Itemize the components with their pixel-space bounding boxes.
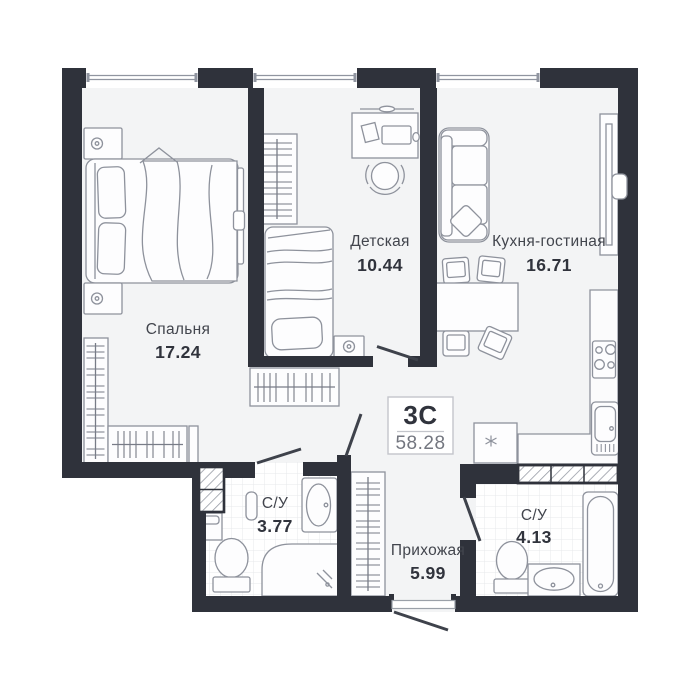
vent-shaft-hatched: [199, 467, 224, 512]
wardrobe-side-panel: [189, 426, 198, 463]
desk: [352, 106, 419, 158]
room-label-kitchen-living: Кухня-гостиная: [492, 233, 606, 250]
room-area-bedroom: 17.24: [155, 342, 201, 362]
wardrobe: [84, 338, 108, 463]
toilet: [494, 542, 530, 594]
room-label-bedroom: Спальня: [146, 321, 210, 338]
sofa: [439, 128, 489, 242]
wardrobe: [108, 426, 187, 463]
kitchen-sink: [592, 402, 619, 455]
single-bed: [265, 227, 333, 358]
nightstand: [84, 128, 122, 159]
toilet: [213, 539, 250, 593]
window: [436, 68, 540, 88]
room-area-kids: 10.44: [357, 255, 403, 275]
entrance-door: [392, 601, 455, 631]
wardrobe: [250, 368, 339, 406]
nightstand: [84, 283, 122, 314]
duct-shaft-hatched: [518, 465, 618, 483]
fridge: [474, 423, 517, 463]
windows: [86, 68, 540, 88]
bathroom-sink: [302, 478, 337, 532]
floor-plan: Спальня 17.24 Детская 10.44 Кухня-гостин…: [0, 0, 700, 700]
room-label-hallway: Прихожая: [391, 542, 465, 559]
unit-info-box: 3С 58.28: [388, 397, 453, 454]
cabinet-handle: [612, 174, 627, 199]
bathroom-vanity-sink: [528, 564, 580, 596]
room-area-hallway: 5.99: [410, 563, 446, 583]
room-area-kitchen-living: 16.71: [526, 255, 572, 275]
window: [86, 68, 198, 88]
stove: [593, 341, 616, 378]
towel-dryer: [246, 492, 257, 520]
double-bed: [86, 148, 238, 283]
unit-total-area: 58.28: [395, 433, 445, 454]
window: [253, 68, 357, 88]
nightstand-with-lamp: [334, 336, 364, 357]
unit-type-label: 3С: [403, 400, 437, 430]
bathtub: [583, 492, 618, 596]
room-label-kids: Детская: [350, 233, 410, 250]
room-label-bathroom-2: С/У: [521, 507, 547, 524]
hallway-wardrobe: [351, 472, 385, 596]
shower: [262, 544, 338, 596]
room-area-bathroom-2: 4.13: [516, 527, 552, 547]
floor-plan-page: Спальня 17.24 Детская 10.44 Кухня-гостин…: [0, 0, 700, 700]
room-label-bathroom-1: С/У: [262, 495, 288, 512]
room-area-bathroom-1: 3.77: [257, 516, 293, 536]
